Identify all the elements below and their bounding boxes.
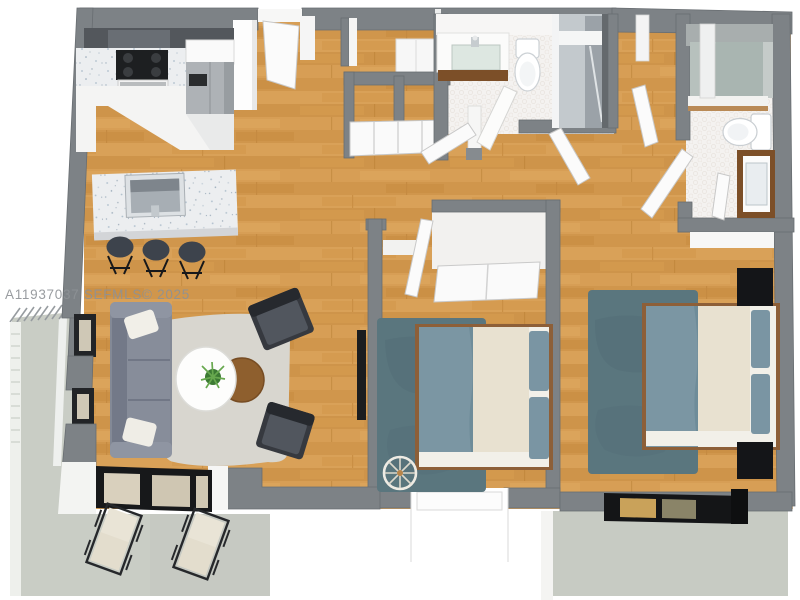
svg-text:A11937037 SEFMLS© 2025: A11937037 SEFMLS© 2025 bbox=[5, 287, 190, 302]
